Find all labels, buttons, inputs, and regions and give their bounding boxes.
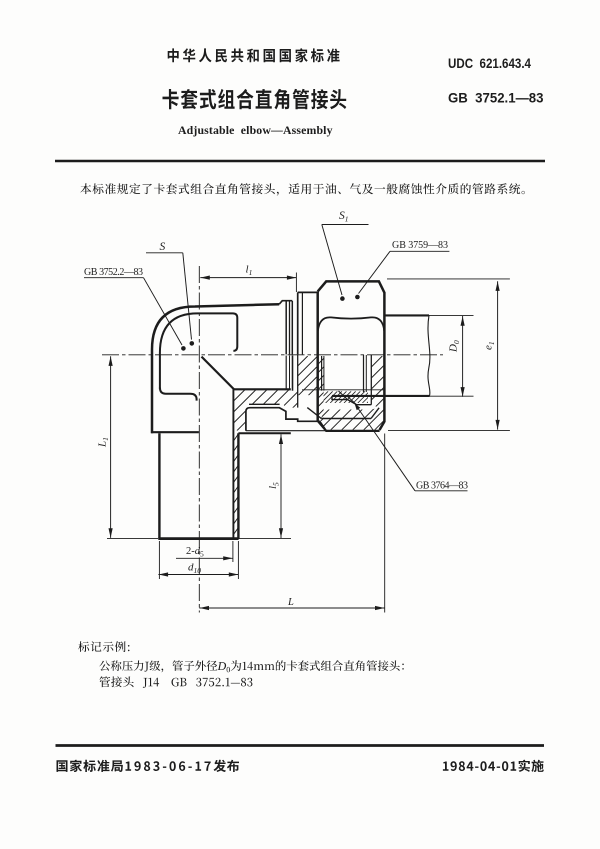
svg-text:S1: S1: [339, 210, 349, 224]
svg-text:GB 3752.2—83: GB 3752.2—83: [84, 267, 143, 278]
svg-text:GB 3764—83: GB 3764—83: [416, 481, 468, 492]
svg-text:2-d5: 2-d5: [186, 546, 204, 559]
svg-text:L: L: [287, 597, 294, 608]
svg-text:l1: l1: [246, 264, 253, 278]
svg-text:L1: L1: [97, 437, 111, 448]
svg-text:l5: l5: [267, 482, 281, 489]
svg-text:e1: e1: [483, 341, 497, 350]
svg-text:GB 3759—83: GB 3759—83: [392, 240, 448, 251]
svg-text:S: S: [160, 241, 166, 253]
svg-text:D0: D0: [448, 340, 462, 353]
